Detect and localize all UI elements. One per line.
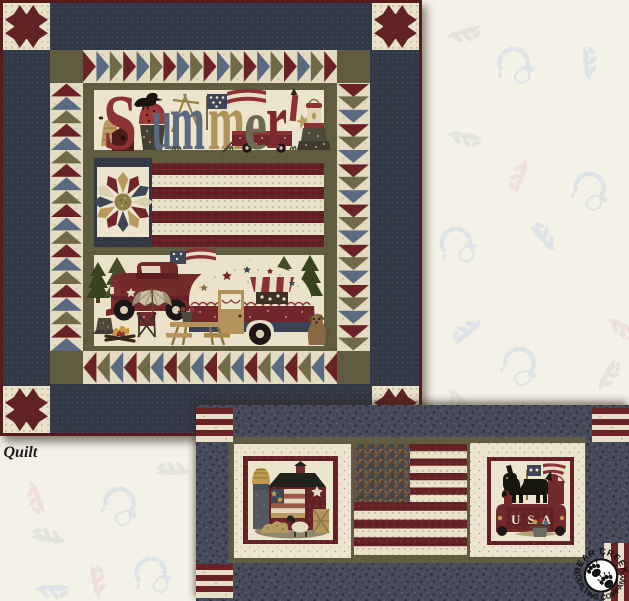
svg-text:e: e <box>244 85 267 165</box>
svg-text:u: u <box>152 79 172 166</box>
svg-text:m: m <box>208 76 245 167</box>
svg-text:Quilt: Quilt <box>4 444 38 461</box>
svg-text:USA: USA <box>511 512 558 527</box>
svg-text:m: m <box>170 76 205 167</box>
svg-text:r: r <box>266 78 287 166</box>
svg-text:S: S <box>103 80 137 167</box>
